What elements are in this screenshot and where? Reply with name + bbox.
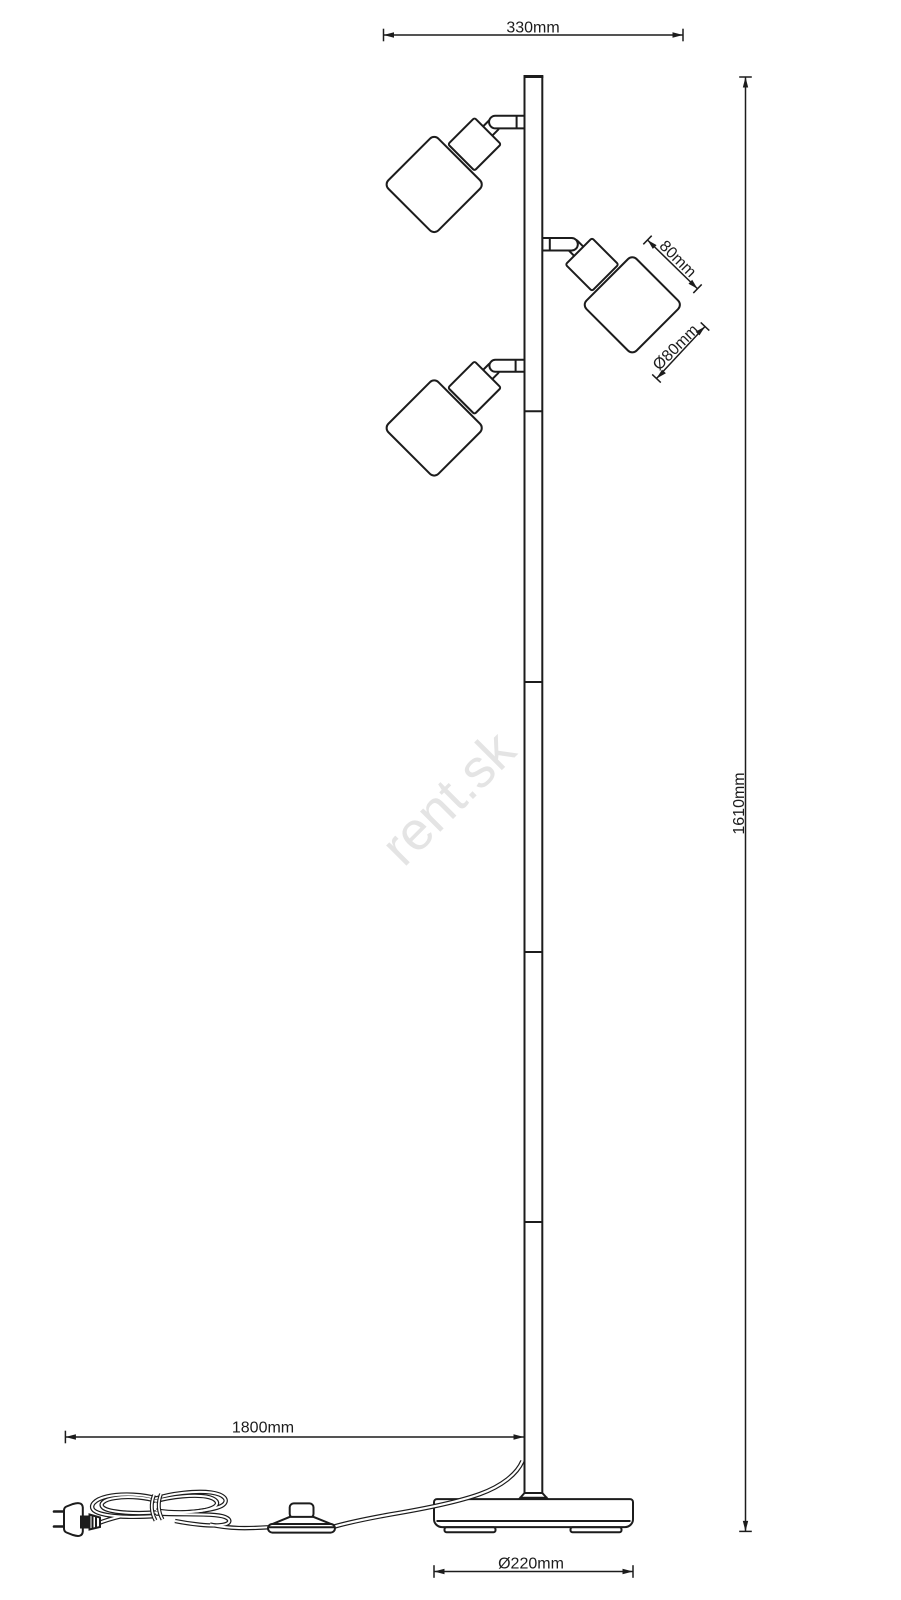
svg-text:rent.sk: rent.sk	[370, 719, 528, 877]
svg-text:330mm: 330mm	[506, 20, 559, 37]
svg-text:1610mm: 1610mm	[731, 772, 748, 834]
svg-text:80mm: 80mm	[656, 238, 699, 281]
svg-text:Ø220mm: Ø220mm	[498, 1556, 564, 1573]
svg-text:1800mm: 1800mm	[232, 1420, 294, 1437]
